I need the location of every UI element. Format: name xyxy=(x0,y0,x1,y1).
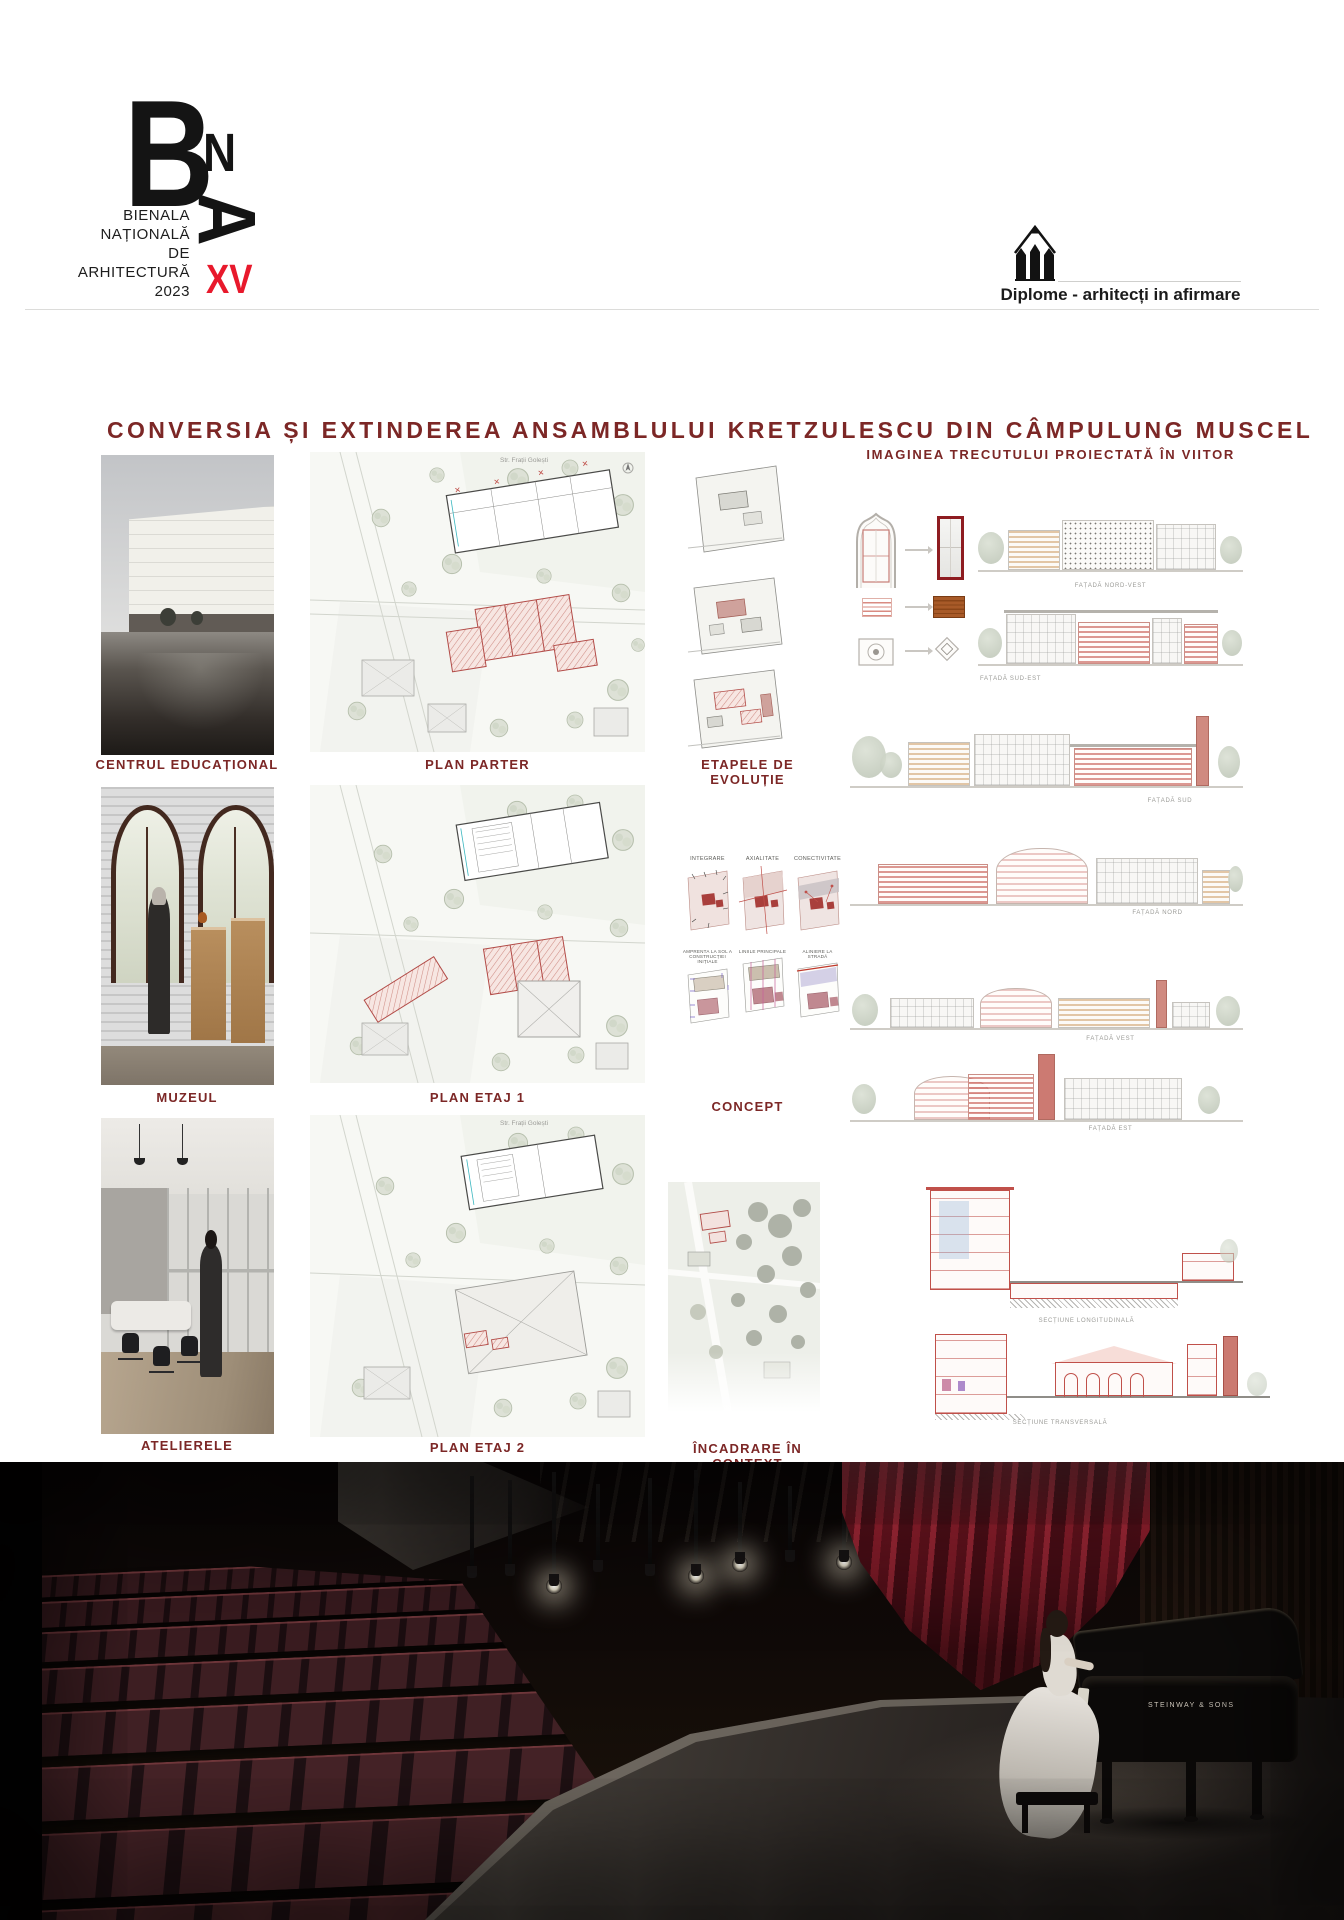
evolution-stage-2 xyxy=(678,572,794,658)
edition-number: XV xyxy=(206,256,252,303)
pencil-house-icon xyxy=(1012,224,1058,282)
facade-label-est: FAȚADĂ EST xyxy=(978,1126,1243,1132)
page-title: CONVERSIA ȘI EXTINDEREA ANSAMBLULUI KRET… xyxy=(107,417,1313,444)
logo-line: 2023 xyxy=(58,282,190,301)
arrow-head xyxy=(928,546,933,554)
concept-label: AMPRENTA LA SOL A CONSTRUCȚIEI INIȚIALE xyxy=(682,949,733,965)
diamond-detail xyxy=(934,636,960,662)
context-aerial xyxy=(668,1182,820,1412)
facade-label-vest: FAȚADĂ VEST xyxy=(978,1036,1243,1042)
facade-sud-est-drawing xyxy=(978,594,1243,672)
spotlight-fixture xyxy=(596,1484,600,1562)
person-silhouette xyxy=(200,1244,222,1377)
program-label: Diplome - arhitecți in afirmare xyxy=(998,285,1243,305)
piano-bench xyxy=(1016,1792,1098,1805)
facade-vest-drawing xyxy=(850,972,1243,1034)
spotlight-fixture xyxy=(694,1470,698,1566)
transform-arrow-icon xyxy=(905,650,929,652)
render-label-museum: MUZEUL xyxy=(77,1090,297,1105)
spotlight-fixture xyxy=(648,1478,652,1566)
logo-line: DE xyxy=(58,244,190,263)
header-divider xyxy=(25,309,1319,310)
section-label-transversal: SECȚIUNE TRANSVERSALĂ xyxy=(900,1420,1220,1426)
concept-diagram-conectivitate xyxy=(792,862,843,936)
site-plan-floor-2: Str. Frații Golești xyxy=(310,1115,645,1437)
section-transversal-drawing xyxy=(935,1332,1270,1418)
vase xyxy=(198,912,207,923)
concept-diagram-axialitate xyxy=(737,862,788,936)
render-label-educational: CENTRUL EDUCAȚIONAL xyxy=(77,757,297,772)
evolution-stage-1 xyxy=(678,460,794,556)
piano-brand-text: STEINWAY & SONS xyxy=(1148,1702,1235,1709)
red-window-detail xyxy=(937,516,964,580)
plan-label-floor1: PLAN ETAJ 1 xyxy=(310,1090,645,1105)
facade-label-nv: FAȚADĂ NORD-VEST xyxy=(978,583,1243,589)
transform-arrow-icon xyxy=(905,549,929,551)
roof-slab xyxy=(1004,610,1218,613)
site-plan-ground-floor: Str. Frații Golești xyxy=(310,452,645,752)
facade-label-sud: FAȚADĂ SUD xyxy=(990,798,1344,804)
spotlight-fixture xyxy=(552,1472,556,1576)
pianist-hair xyxy=(1040,1628,1051,1672)
arch-window-detail xyxy=(853,512,899,590)
visitor-silhouette xyxy=(148,894,170,1034)
stages-label: ETAPELE DE EVOLUȚIE xyxy=(665,757,830,787)
logo-text: BIENALA NAȚIONALĂ DE ARHITECTURĂ 2023 xyxy=(58,206,190,301)
piano-leg xyxy=(1252,1754,1262,1816)
render-educational-center xyxy=(101,455,274,755)
rosette-detail xyxy=(858,638,894,666)
grand-piano-body xyxy=(1082,1676,1298,1762)
concept-diagram-amprenta xyxy=(682,965,733,1027)
logo-line: BIENALA xyxy=(58,206,190,225)
logo-line: ARHITECTURĂ xyxy=(58,263,190,282)
render-museum xyxy=(101,787,274,1085)
facade-est-drawing xyxy=(850,1050,1243,1126)
concept-diagram-integrare xyxy=(682,862,733,936)
facade-label-nord: FAȚADĂ NORD xyxy=(980,910,1335,916)
transform-arrow-icon xyxy=(905,606,929,608)
render-label-workshops: ATELIERELE xyxy=(77,1438,297,1453)
piano-leg xyxy=(1186,1762,1196,1818)
right-column-heading: IMAGINEA TRECUTULUI PROIECTATĂ ÎN VIITOR xyxy=(835,447,1235,462)
facade-sud-drawing xyxy=(850,700,1243,792)
logo-letter-a: A xyxy=(185,192,267,245)
facade-nord-drawing xyxy=(850,820,1243,910)
brick-pattern-dark-detail xyxy=(933,596,965,618)
concert-hall-render: STEINWAY & SONS xyxy=(0,1462,1344,1920)
program-underline xyxy=(1058,281,1241,282)
plan-label-ground: PLAN PARTER xyxy=(310,757,645,772)
plan-label-floor2: PLAN ETAJ 2 xyxy=(310,1440,645,1455)
brick-pattern-detail xyxy=(862,598,892,617)
evolution-stage-3 xyxy=(678,664,794,752)
render-workshops xyxy=(101,1118,274,1434)
spotlight-fixture xyxy=(788,1486,792,1552)
logo-line: NAȚIONALĂ xyxy=(58,225,190,244)
section-label-longitudinal: SECȚIUNE LONGITUDINALĂ xyxy=(930,1318,1243,1324)
spotlight-fixture xyxy=(738,1482,742,1554)
left-wall xyxy=(0,1462,42,1920)
concept-diagrams: INTEGRARE AXIALITATE xyxy=(682,856,844,1032)
street-label: Str. Frații Golești xyxy=(500,457,548,464)
site-plan-floor-1 xyxy=(310,785,645,1083)
facade-nord-vest-drawing xyxy=(978,506,1243,578)
concept-label: ALINIERE LA STRADĂ xyxy=(792,949,843,959)
street-label: Str. Frații Golești xyxy=(500,1120,548,1127)
spotlight-fixture xyxy=(470,1476,474,1568)
section-longitudinal-drawing xyxy=(930,1185,1243,1313)
concept-diagram-linii xyxy=(737,954,788,1016)
logo-letter-n: N xyxy=(203,126,236,180)
concept-diagram-aliniere xyxy=(792,959,843,1021)
arrow-head xyxy=(928,647,933,655)
piano-leg xyxy=(1102,1758,1112,1820)
presentation-board: B N A BIENALA NAȚIONALĂ DE ARHITECTURĂ 2… xyxy=(0,0,1344,1920)
facade-label-se: FAȚADĂ SUD-EST xyxy=(980,676,1340,682)
spotlight-fixture xyxy=(508,1480,512,1566)
concept-label-main: CONCEPT xyxy=(665,1099,830,1114)
